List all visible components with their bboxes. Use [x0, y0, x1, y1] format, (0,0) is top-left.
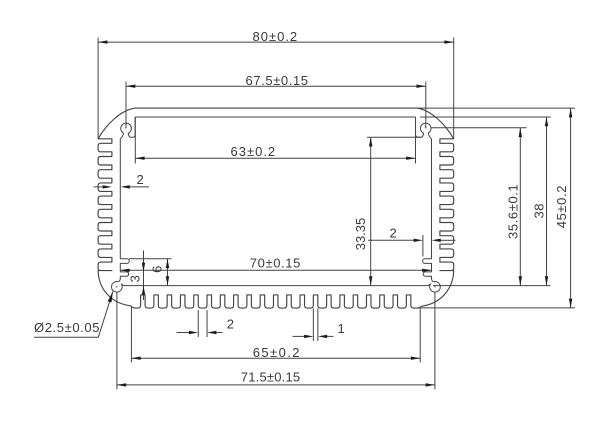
svg-text:3: 3: [128, 274, 143, 282]
svg-text:Ø2.5±0.05: Ø2.5±0.05: [34, 320, 100, 335]
svg-text:33.35: 33.35: [353, 218, 368, 251]
svg-text:70±0.15: 70±0.15: [250, 255, 301, 270]
svg-text:67.5±0.15: 67.5±0.15: [246, 73, 309, 88]
svg-text:80±0.2: 80±0.2: [253, 29, 299, 44]
svg-text:1: 1: [338, 321, 346, 336]
svg-text:63±0.2: 63±0.2: [231, 144, 277, 159]
svg-text:65±0.2: 65±0.2: [253, 345, 301, 360]
svg-text:2: 2: [137, 172, 145, 187]
svg-text:6: 6: [150, 265, 165, 273]
svg-text:2: 2: [390, 226, 398, 241]
svg-text:35.6±0.1: 35.6±0.1: [505, 184, 520, 239]
svg-text:71.5±0.15: 71.5±0.15: [241, 370, 301, 385]
svg-text:2: 2: [227, 316, 235, 331]
svg-text:45±0.2: 45±0.2: [554, 185, 569, 228]
svg-text:38: 38: [531, 203, 546, 219]
